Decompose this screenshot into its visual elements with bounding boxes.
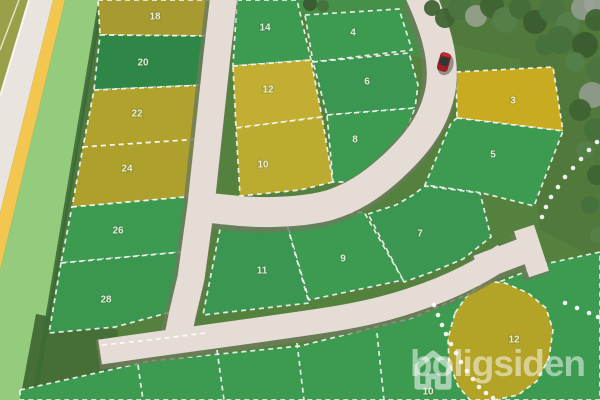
plot-10[interactable] — [236, 117, 333, 196]
tree-14 — [535, 35, 555, 55]
tree-dots-plot12 — [444, 332, 449, 337]
tree-dots-plot12 — [454, 351, 459, 356]
plot-label-4: 4 — [350, 28, 356, 39]
tree-15 — [565, 52, 585, 72]
tree-dots-plot12 — [465, 369, 470, 374]
plot-label-10: 10 — [257, 160, 269, 171]
plot-label-24: 24 — [121, 164, 133, 175]
plot-12[interactable] — [233, 60, 322, 128]
plot-14[interactable] — [233, 0, 311, 66]
tree-dots-plot12 — [440, 323, 445, 328]
plot-label-14: 14 — [259, 23, 271, 34]
tree-dots-corner — [563, 301, 568, 306]
tree-dots-right — [563, 175, 568, 180]
plot-label-20: 20 — [137, 58, 149, 69]
tree-22 — [581, 196, 599, 214]
plot-label-22: 22 — [131, 109, 143, 120]
plot-label-12b: 12 — [508, 335, 520, 346]
tree-18 — [569, 99, 591, 121]
site-plan-image: 1820222426281412104683579111210 boligsid… — [0, 0, 600, 400]
tree-dots-plot12 — [471, 377, 476, 382]
tree-dots-right — [571, 166, 576, 171]
plot-label-5: 5 — [490, 150, 496, 161]
plot-label-6: 6 — [364, 77, 370, 88]
hammerhead-bar — [524, 228, 539, 274]
tree-dots-right — [549, 195, 554, 200]
plot-label-3: 3 — [510, 96, 516, 107]
site-plan-map: 1820222426281412104683579111210 — [0, 0, 600, 400]
plot-22[interactable] — [83, 85, 205, 147]
tree-dots-plot12 — [477, 385, 482, 390]
tree-dots-right — [587, 148, 592, 153]
tree-dots-right — [556, 185, 561, 190]
plot-label-9: 9 — [340, 254, 346, 265]
plot-label-extra-0: 10 — [422, 387, 434, 398]
plot-label-18: 18 — [149, 12, 161, 23]
plot-label-11: 11 — [257, 266, 268, 277]
plot-label-12: 12 — [262, 85, 274, 96]
plot-label-8: 8 — [352, 135, 358, 146]
tree-dots-corner — [587, 311, 592, 316]
tree-dots-plot12 — [449, 342, 454, 347]
tree-26 — [317, 0, 329, 12]
tree-dots-plot12 — [436, 313, 441, 318]
tree-dots-right — [595, 140, 600, 145]
tree-dots-corner — [575, 306, 580, 311]
tree-dots-plot12 — [484, 391, 489, 396]
tree-24 — [424, 0, 440, 16]
plot-label-26: 26 — [112, 226, 124, 237]
plot-label-28: 28 — [100, 295, 112, 306]
tree-dots-right — [579, 157, 584, 162]
plot-20[interactable] — [94, 35, 209, 90]
tree-dots-plot12 — [459, 360, 464, 365]
tree-dots-plot12 — [432, 303, 437, 308]
tree-dots-right — [544, 205, 549, 210]
plot-label-7: 7 — [417, 229, 423, 240]
tree-dots-right — [540, 215, 545, 220]
